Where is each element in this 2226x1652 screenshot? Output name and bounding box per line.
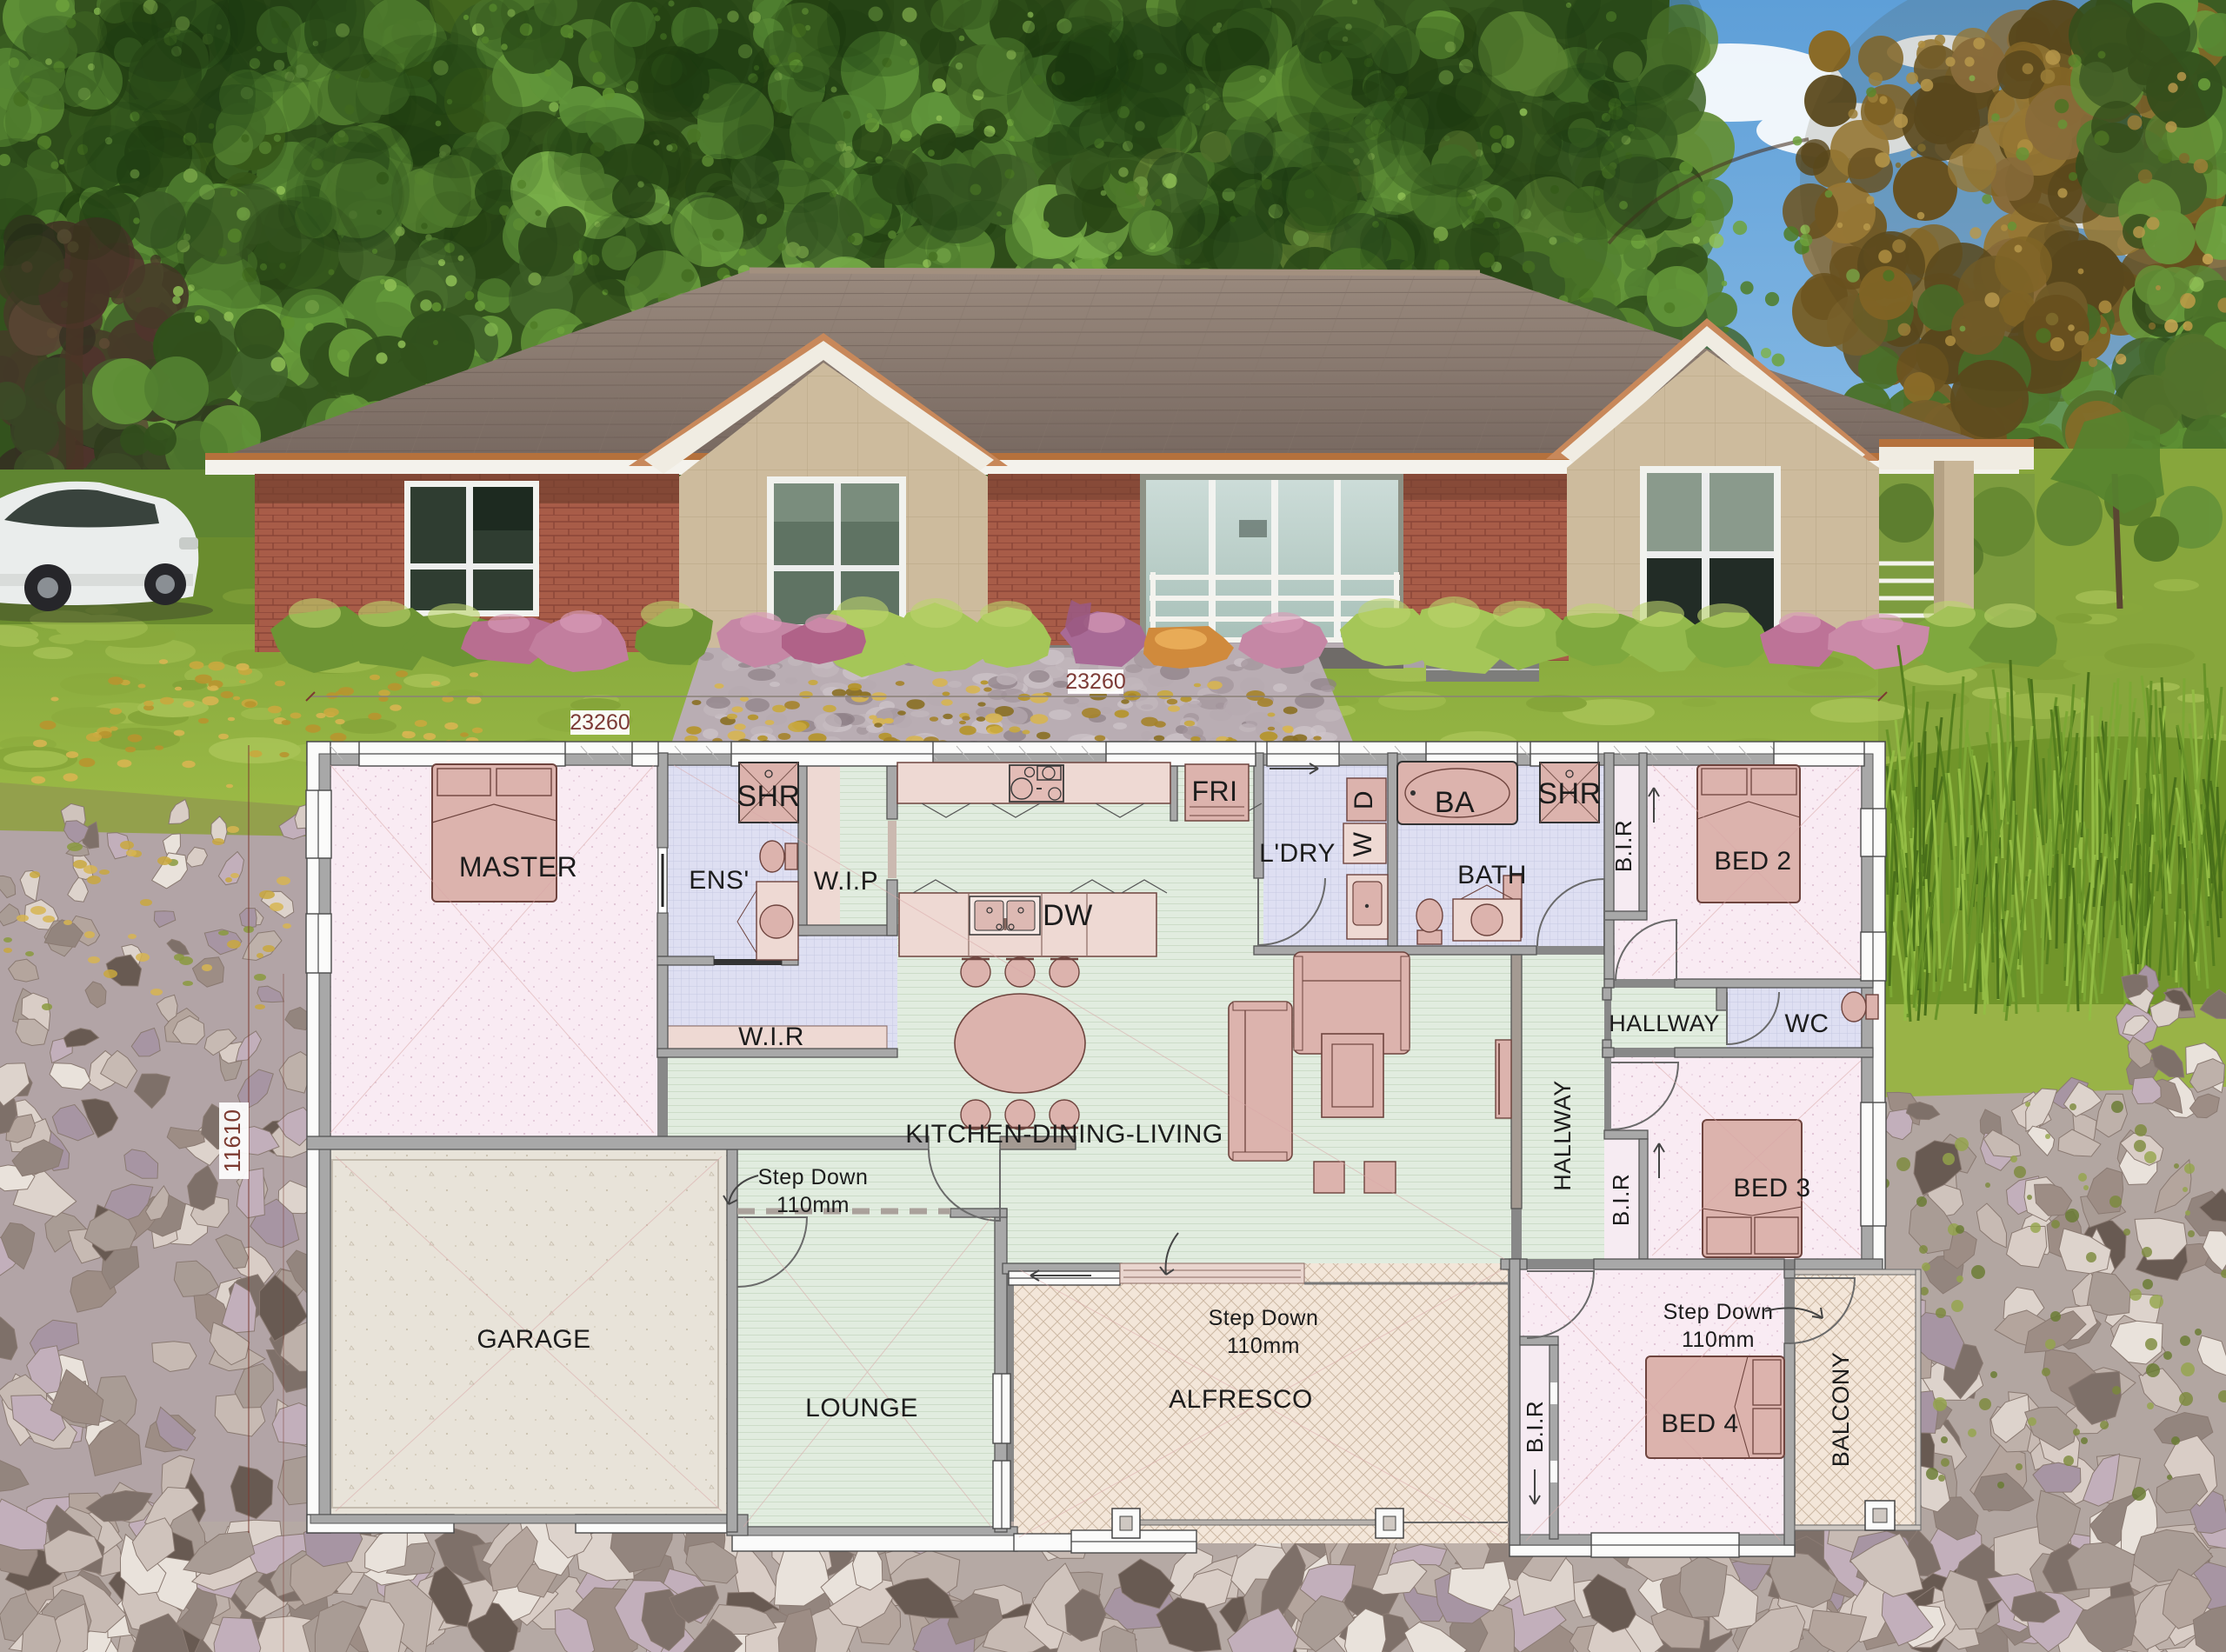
svg-text:W.I.R: W.I.R <box>738 1023 804 1051</box>
svg-text:BALCONY: BALCONY <box>1828 1352 1854 1468</box>
svg-text:W: W <box>1349 831 1377 856</box>
svg-text:BATH: BATH <box>1457 861 1527 889</box>
svg-text:L'DRY: L'DRY <box>1259 839 1336 868</box>
svg-text:11610: 11610 <box>219 1109 245 1173</box>
svg-text:HALLWAY: HALLWAY <box>1609 1010 1720 1036</box>
svg-text:MASTER: MASTER <box>459 851 577 883</box>
svg-text:BED 2: BED 2 <box>1714 847 1791 876</box>
svg-text:23260: 23260 <box>1065 669 1126 694</box>
svg-text:BA: BA <box>1435 786 1475 819</box>
svg-text:HALLWAY: HALLWAY <box>1550 1080 1576 1191</box>
svg-text:W.I.P: W.I.P <box>814 867 878 896</box>
svg-text:110mm: 110mm <box>1682 1328 1755 1352</box>
svg-text:SHR: SHR <box>1537 777 1601 810</box>
svg-text:D: D <box>1350 790 1378 809</box>
svg-text:LOUNGE: LOUNGE <box>805 1394 918 1422</box>
svg-text:WC: WC <box>1785 1009 1829 1038</box>
svg-text:DW: DW <box>1043 899 1093 932</box>
svg-text:23260: 23260 <box>570 710 630 735</box>
svg-text:ENS': ENS' <box>689 866 749 895</box>
svg-text:KITCHEN-DINING-LIVING: KITCHEN-DINING-LIVING <box>905 1120 1223 1149</box>
svg-text:B.I.R: B.I.R <box>1610 820 1636 872</box>
svg-text:Step Down: Step Down <box>1209 1306 1319 1330</box>
svg-text:BED 4: BED 4 <box>1661 1409 1738 1438</box>
svg-text:SHR: SHR <box>736 780 800 813</box>
svg-text:B.I.R: B.I.R <box>1522 1401 1548 1453</box>
svg-text:GARAGE: GARAGE <box>477 1325 590 1354</box>
svg-text:110mm: 110mm <box>776 1193 850 1217</box>
svg-text:Step Down: Step Down <box>1663 1300 1774 1324</box>
svg-text:Step Down: Step Down <box>758 1165 869 1189</box>
svg-text:BED 3: BED 3 <box>1733 1174 1810 1202</box>
svg-text:ALFRESCO: ALFRESCO <box>1169 1385 1313 1414</box>
svg-text:110mm: 110mm <box>1227 1334 1300 1358</box>
svg-text:FRI: FRI <box>1191 776 1237 807</box>
svg-text:B.I.R: B.I.R <box>1608 1174 1634 1226</box>
